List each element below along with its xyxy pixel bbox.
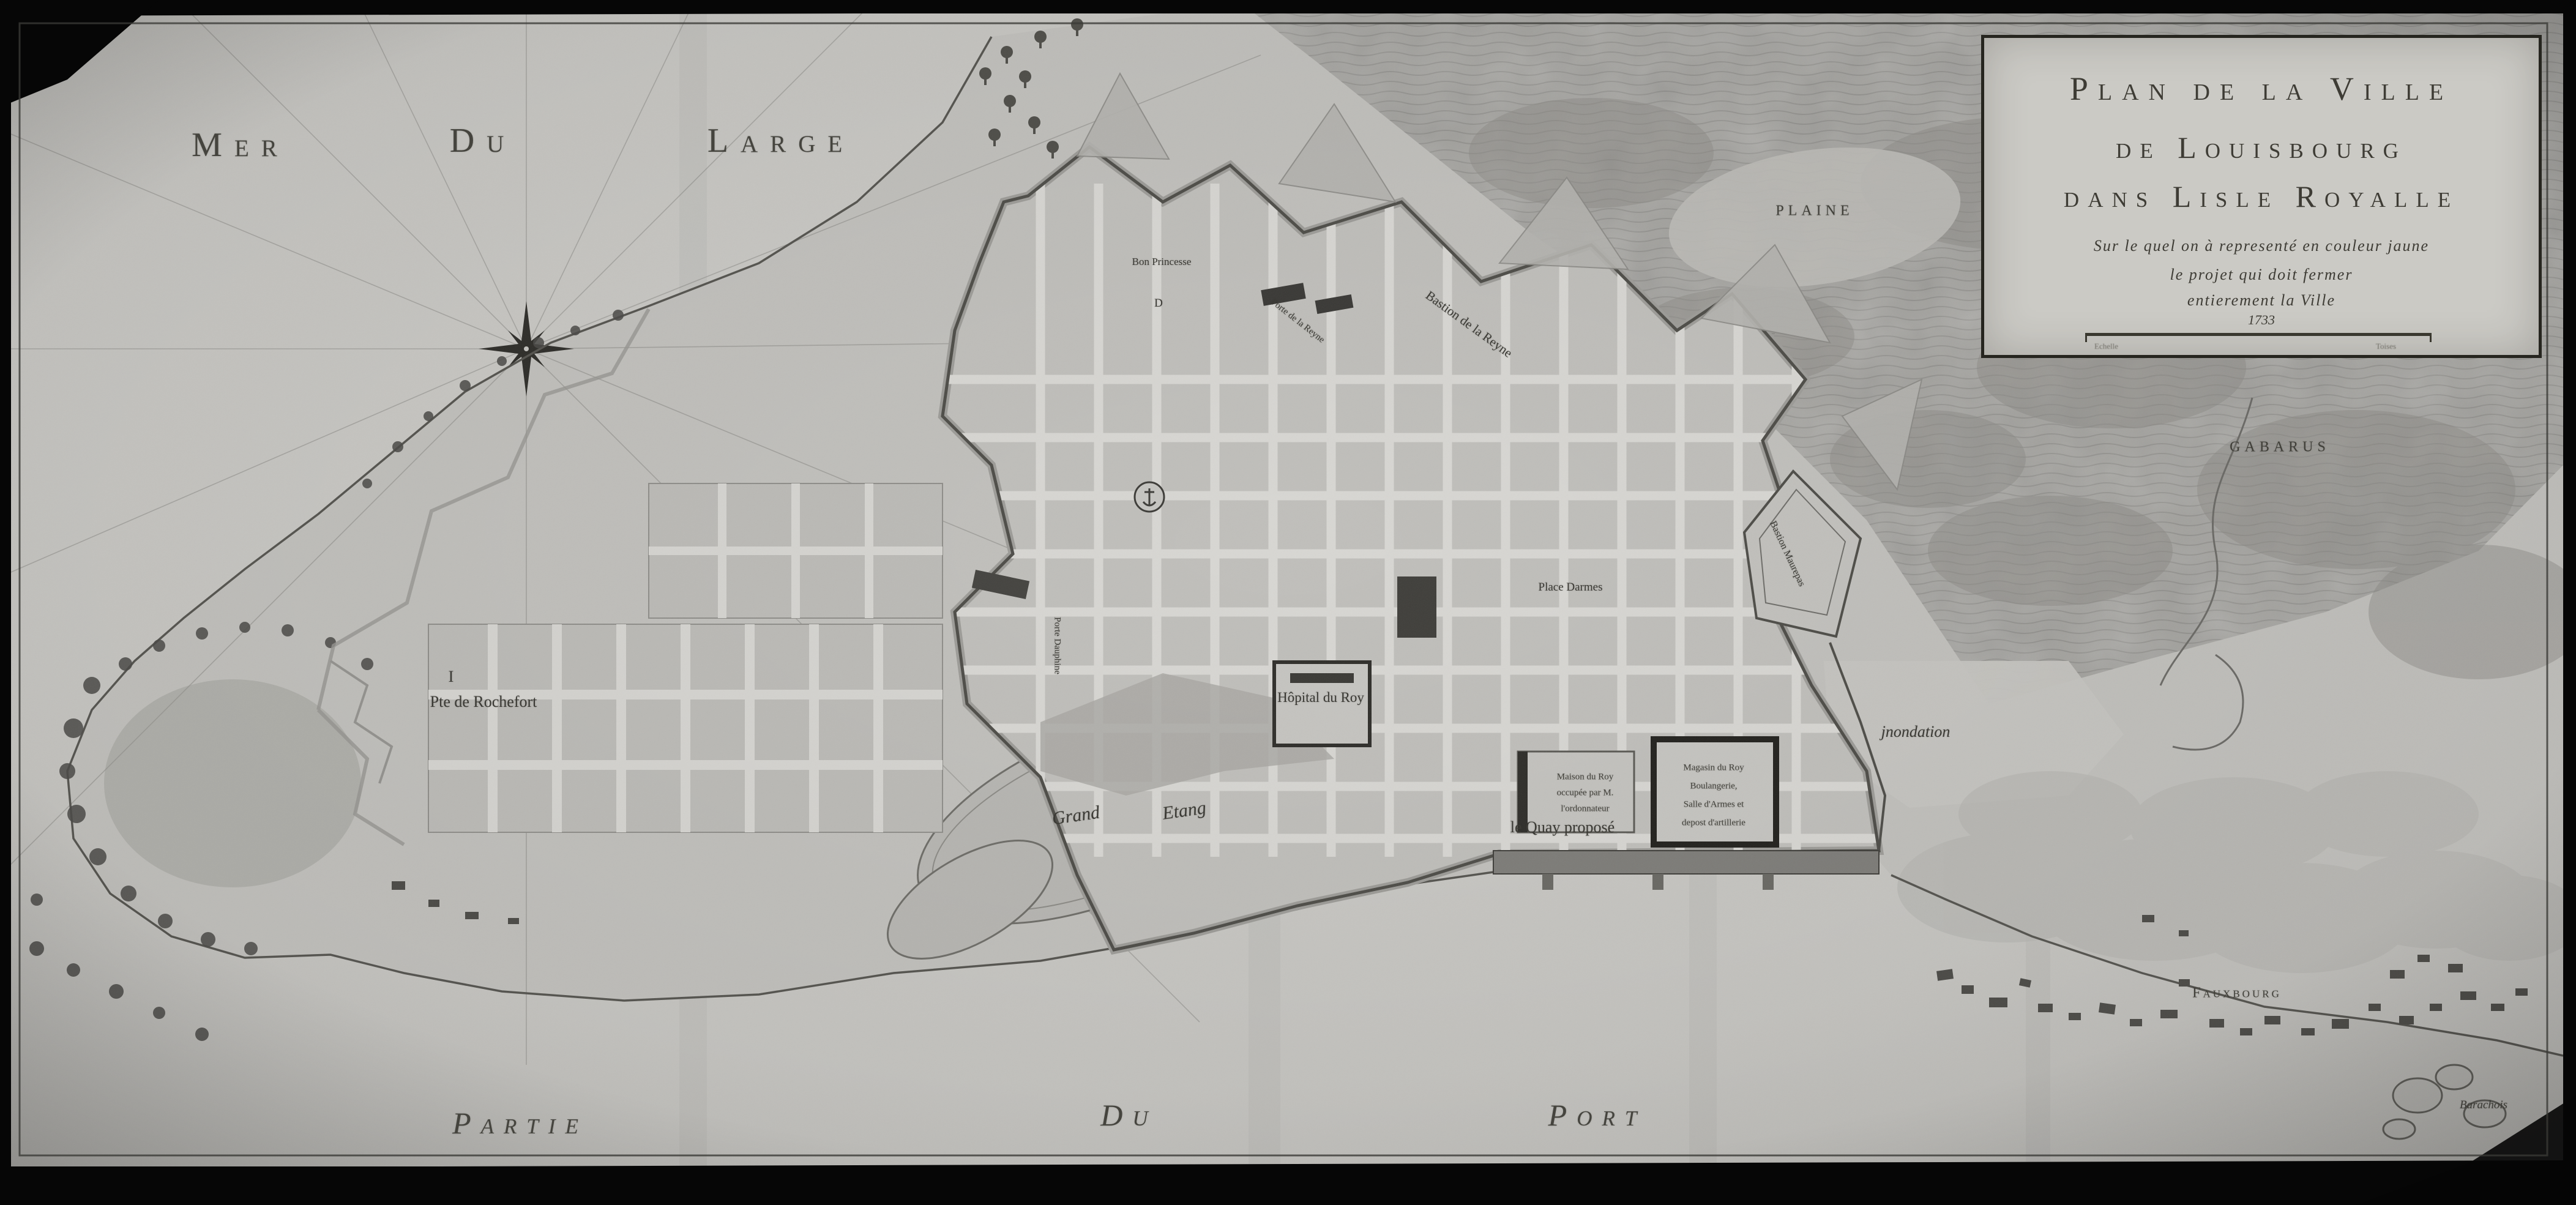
label-maison-roy-2: occupée par M. [1557,788,1614,799]
label-magasins-4: depost d'artillerie [1682,818,1745,829]
port-label-du: Du [1100,1097,1157,1133]
label-bastion-princesse: Bon Princesse [1132,256,1192,268]
label-maison-roy-3: l'ordonnateur [1561,804,1609,815]
title-cartouche: Plan de la Ville de Louisbourg dans Lisl… [1981,35,2542,358]
sea-label-mer: Mer [192,125,289,165]
label-pte-rochefort: Pte de Rochefort [430,693,537,711]
label-magasins-2: Boulangerie, [1690,782,1737,792]
label-gabarus: GABARUS [2230,439,2330,456]
label-quay: le Quay proposé [1510,818,1615,837]
label-magasins-3: Salle d'Armes et [1684,800,1744,810]
scale-caption-right: Toises [2376,341,2396,351]
label-marker-d: D [1154,297,1163,310]
label-plaine: PLAINE [1775,203,1853,220]
label-place-darmes: Place Darmes [1539,581,1603,594]
cartouche-title-line1: Plan de la Ville [1984,70,2539,108]
cartouche-subtitle-line3: entierement la Ville [1984,291,2539,310]
label-hopital: Hôpital du Roy [1277,690,1364,706]
port-label-partie: Partie [452,1105,588,1141]
cartouche-title-line2: de Louisbourg [1984,130,2539,165]
sea-label-du: Du [450,121,517,160]
label-fauxbourg: Fauxbourg [2192,985,2282,1002]
cartouche-date: 1733 [1984,312,2539,328]
label-maison-roy-1: Maison du Roy [1557,772,1614,783]
label-marker-i: I [449,668,454,686]
cartouche-title-line3: dans Lisle Royalle [1984,179,2539,214]
sea-label-large: Large [707,121,854,160]
label-barachois: Barachois [2460,1099,2507,1112]
label-inondation: jnondation [1881,723,1951,741]
map-photo: Mer Du Large Partie Du Port Pte de Roche… [0,0,2576,1205]
cartouche-subtitle-line2: le projet qui doit fermer [1984,266,2539,284]
label-porte-dauphine: Porte Dauphine [1052,617,1062,674]
cartouche-subtitle-line1: Sur le quel on à representé en couleur j… [1984,237,2539,255]
port-label-port: Port [1548,1097,1647,1133]
scale-caption-left: Echelle [2094,341,2118,351]
scale-bar [2085,333,2432,342]
label-magasins-1: Magasin du Roy [1683,763,1744,774]
